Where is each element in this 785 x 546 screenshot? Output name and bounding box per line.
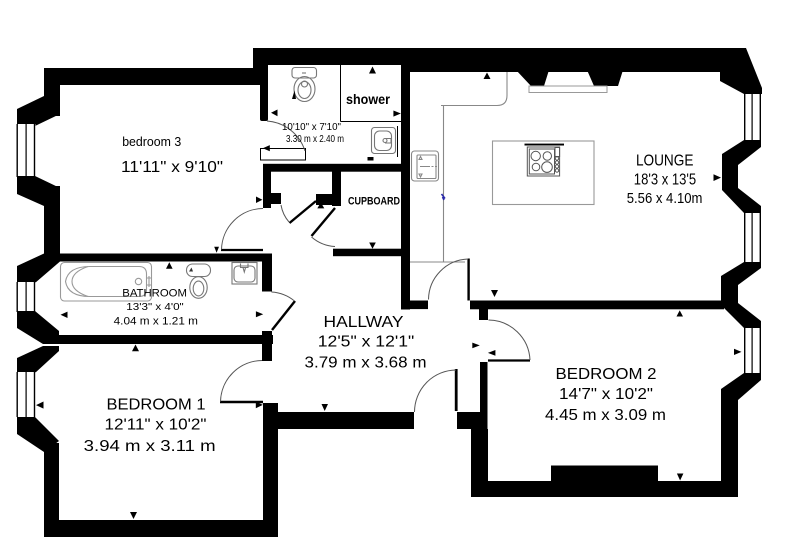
svg-text:12'5" x 12'1": 12'5" x 12'1"	[318, 334, 415, 351]
svg-text:12'11" x 10'2": 12'11" x 10'2"	[105, 417, 207, 434]
svg-text:BEDROOM 1: BEDROOM 1	[107, 397, 206, 414]
svg-text:4.45 m x 3.09 m: 4.45 m x 3.09 m	[545, 407, 666, 424]
svg-text:CUPBOARD: CUPBOARD	[348, 195, 400, 207]
svg-text:18'3 x 13'5: 18'3 x 13'5	[634, 172, 696, 189]
svg-text:BEDROOM 2: BEDROOM 2	[556, 366, 657, 383]
svg-text:5.56 x 4.10m: 5.56 x 4.10m	[627, 191, 703, 207]
svg-text:bedroom 3: bedroom 3	[122, 135, 181, 149]
svg-text:4.04 m x 1.21 m: 4.04 m x 1.21 m	[114, 316, 198, 328]
svg-text:11'11" x 9'10": 11'11" x 9'10"	[121, 159, 223, 176]
svg-text:10'10" x 7'10": 10'10" x 7'10"	[282, 122, 341, 133]
svg-text:shower: shower	[346, 92, 391, 107]
svg-text:HALLWAY: HALLWAY	[324, 314, 404, 331]
svg-text:LOUNGE: LOUNGE	[636, 153, 694, 170]
svg-text:3.94 m x 3.11 m: 3.94 m x 3.11 m	[84, 438, 216, 455]
svg-text:3.30 m x 2.40 m: 3.30 m x 2.40 m	[286, 134, 344, 145]
svg-text:BATHROOM: BATHROOM	[122, 287, 187, 299]
svg-text:13'3" x 4'0": 13'3" x 4'0"	[126, 302, 184, 313]
svg-text:14'7" x 10'2": 14'7" x 10'2"	[559, 386, 653, 403]
svg-text:3.79 m x 3.68 m: 3.79 m x 3.68 m	[305, 355, 427, 372]
